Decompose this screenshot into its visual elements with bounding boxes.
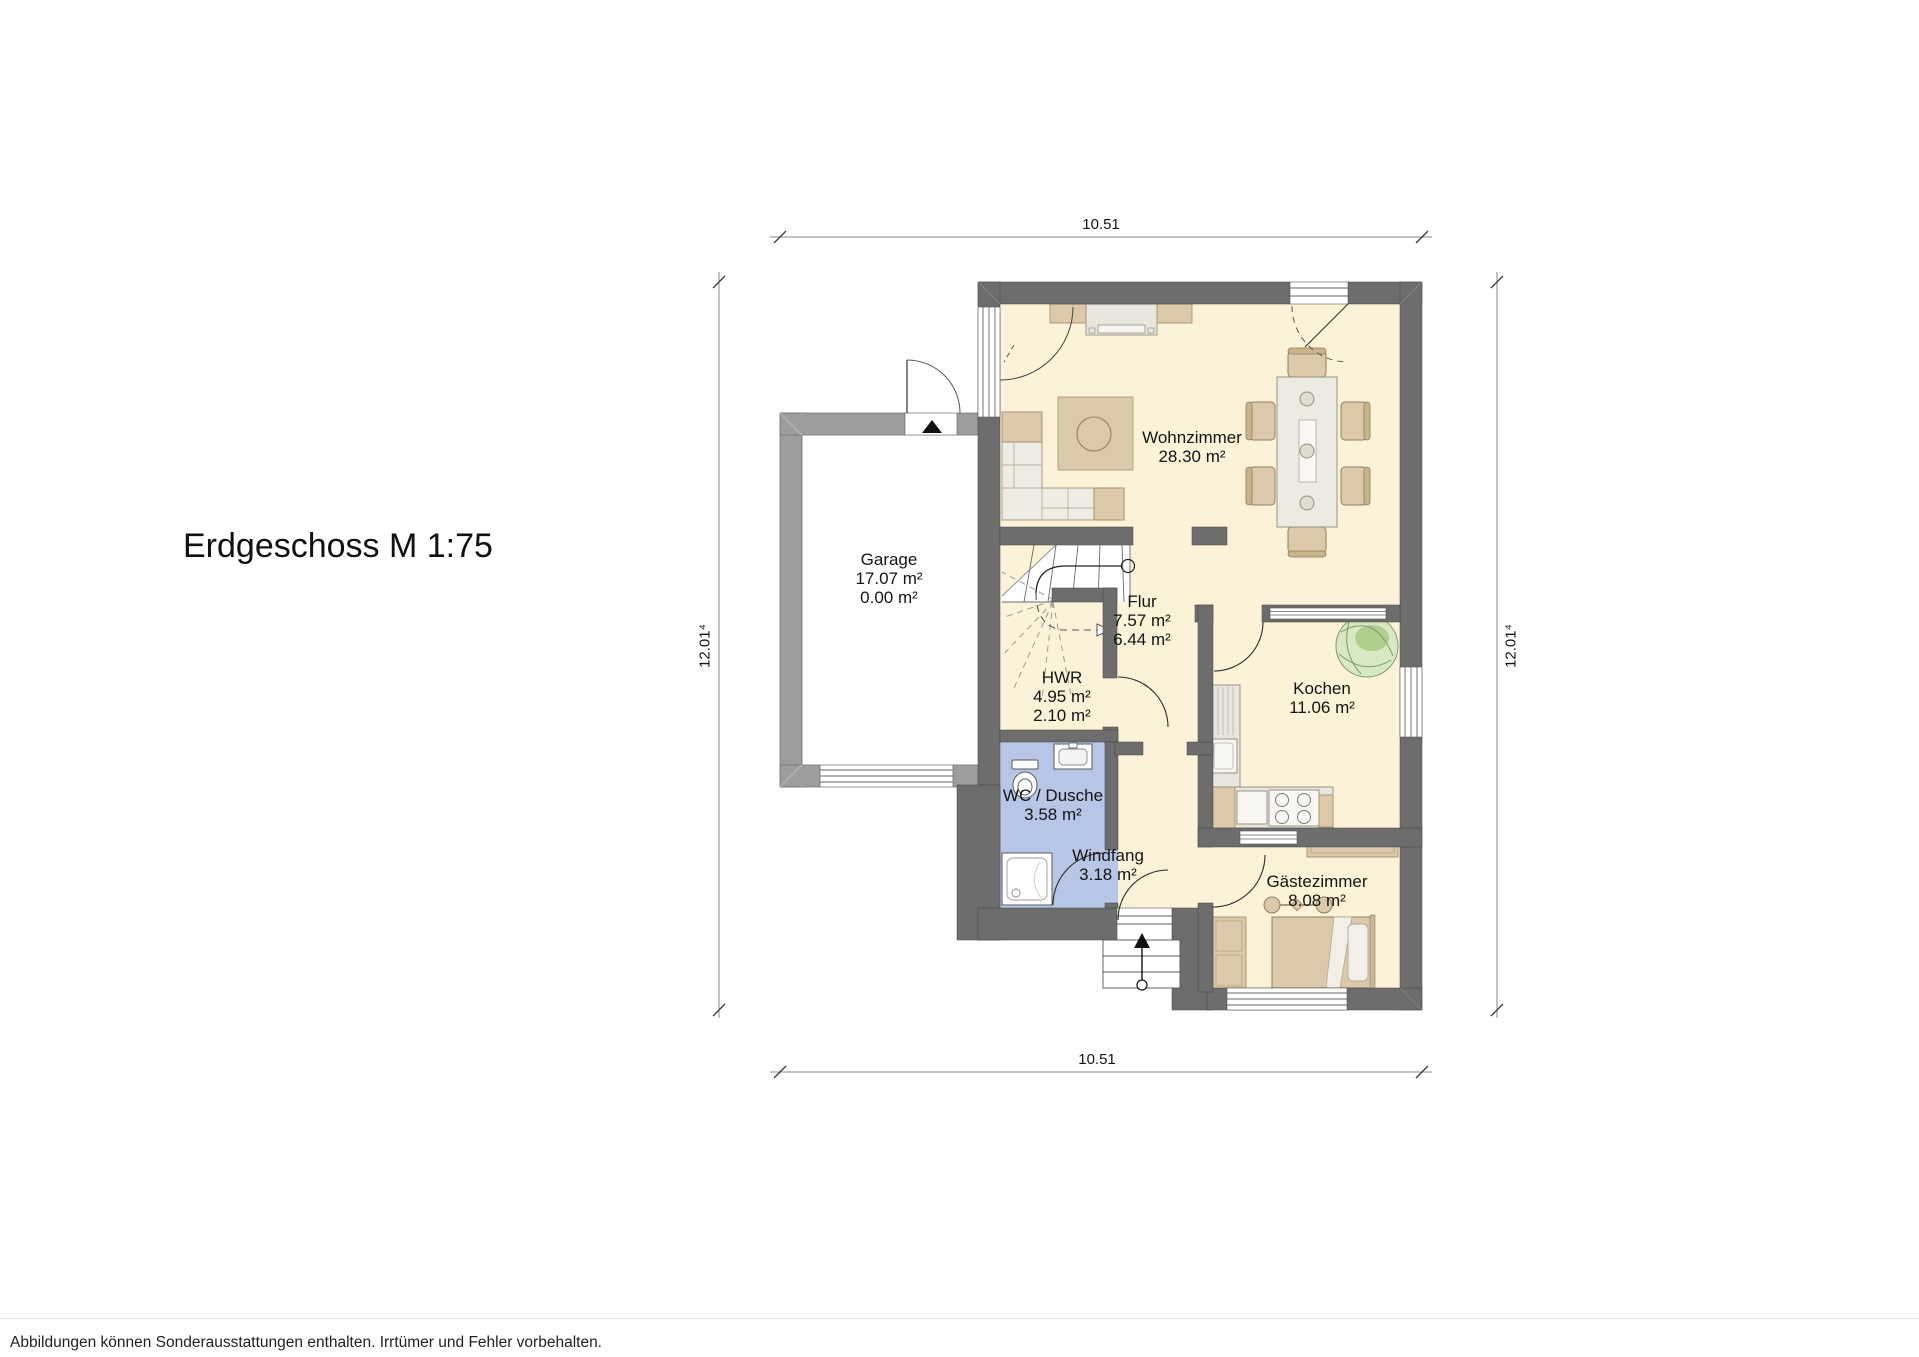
bed [1272,915,1375,990]
room-area: 17.07 m² [855,569,922,588]
page-title: Erdgeschoss M 1:75 [183,527,493,566]
page-divider [0,1318,1919,1319]
pass-through-slot [1270,608,1386,619]
room-area: 4.95 m² [1033,687,1091,706]
dimension-top: 10.51 [1082,216,1120,233]
garage-door [905,360,960,435]
room-area: 11.06 m² [1289,698,1355,717]
floorplan-page: Erdgeschoss M 1:75 Garage 17.07 m² 0.00 … [0,0,1919,1357]
dimension-left: 12.01⁴ [697,624,714,668]
sink-icon [1054,743,1092,769]
room-label-hwr: HWR 4.95 m² 2.10 m² [1033,668,1091,725]
garage-window [820,765,953,787]
room-area: 28.30 m² [1142,447,1242,466]
room-name: Flur [1113,592,1171,611]
coffee-table [1058,397,1133,470]
room-area: 3.18 m² [1072,865,1144,884]
divider-slot [1240,831,1297,844]
room-name: WC / Dusche [1003,786,1103,805]
room-name: Gästezimmer [1266,872,1367,891]
room-name: Windfang [1072,846,1144,865]
room-label-windfang: Windfang 3.18 m² [1072,846,1144,884]
room-area: 8.08 m² [1266,891,1367,910]
room-label-garage: Garage 17.07 m² 0.00 m² [855,550,922,607]
dimension-bottom: 10.51 [1078,1051,1116,1068]
wardrobe [1212,917,1246,990]
dimension-right: 12.01⁴ [1503,624,1520,668]
entrance-steps [1103,933,1180,990]
room-area: 2.10 m² [1033,706,1091,725]
floorplan-drawing [0,0,1919,1357]
room-label-gaestezimmer: Gästezimmer 8.08 m² [1266,872,1367,910]
room-name: Kochen [1289,679,1355,698]
guest-room-window [1227,988,1347,1010]
room-label-kochen: Kochen 11.06 m² [1289,679,1355,717]
room-name: Wohnzimmer [1142,428,1242,447]
entrance-door-gap [1117,908,1172,940]
room-area: 6.44 m² [1113,630,1171,649]
shower-icon [1002,853,1052,905]
footer-disclaimer: Abbildungen können Sonderausstattungen e… [10,1334,602,1352]
kitchen-window [1400,667,1422,737]
room-label-wc-dusche: WC / Dusche 3.58 m² [1003,786,1103,824]
room-label-flur: Flur 7.57 m² 6.44 m² [1113,592,1171,649]
room-area: 3.58 m² [1003,805,1103,824]
plant [1336,615,1398,677]
room-name: Garage [855,550,922,569]
room-area: 0.00 m² [855,588,922,607]
room-name: HWR [1033,668,1091,687]
room-area: 7.57 m² [1113,611,1171,630]
room-label-wohnzimmer: Wohnzimmer 28.30 m² [1142,428,1242,466]
